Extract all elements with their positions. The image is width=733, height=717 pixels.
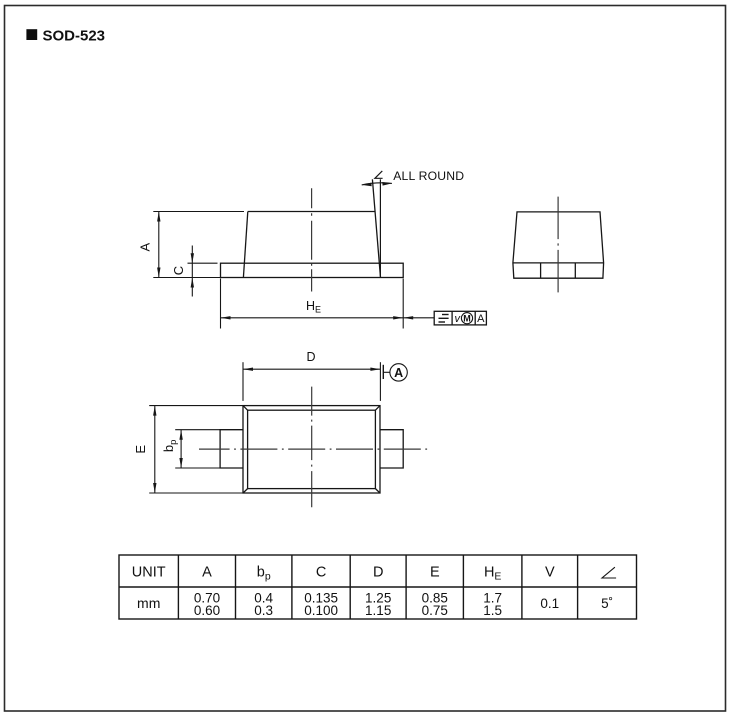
svg-text:5˚: 5˚ <box>601 596 613 611</box>
svg-text:C: C <box>171 266 186 275</box>
svg-text:A: A <box>477 313 485 325</box>
svg-text:bp: bp <box>257 565 271 583</box>
svg-text:D: D <box>306 350 315 364</box>
svg-text:E: E <box>133 445 148 454</box>
svg-text:M: M <box>463 313 471 323</box>
svg-text:E: E <box>430 565 440 581</box>
svg-text:V: V <box>545 565 555 581</box>
svg-text:bp: bp <box>161 440 179 453</box>
svg-text:mm: mm <box>137 595 160 611</box>
svg-text:1.5: 1.5 <box>483 603 502 618</box>
svg-text:UNIT: UNIT <box>132 565 166 581</box>
svg-text:A: A <box>202 565 212 581</box>
svg-text:HE: HE <box>306 299 321 315</box>
svg-text:A: A <box>138 242 153 251</box>
svg-text:1.15: 1.15 <box>365 603 391 618</box>
svg-text:0.75: 0.75 <box>422 603 448 618</box>
svg-text:0.60: 0.60 <box>194 603 220 618</box>
svg-text:C: C <box>316 565 326 581</box>
svg-text:0.1: 0.1 <box>540 596 559 611</box>
svg-text:SOD-523: SOD-523 <box>43 28 106 45</box>
svg-text:v: v <box>455 313 462 325</box>
svg-text:ALL ROUND: ALL ROUND <box>393 169 464 183</box>
svg-text:A: A <box>394 366 403 380</box>
svg-text:HE: HE <box>484 565 502 583</box>
svg-text:0.100: 0.100 <box>304 603 338 618</box>
svg-text:0.3: 0.3 <box>254 603 273 618</box>
svg-text:D: D <box>373 565 383 581</box>
